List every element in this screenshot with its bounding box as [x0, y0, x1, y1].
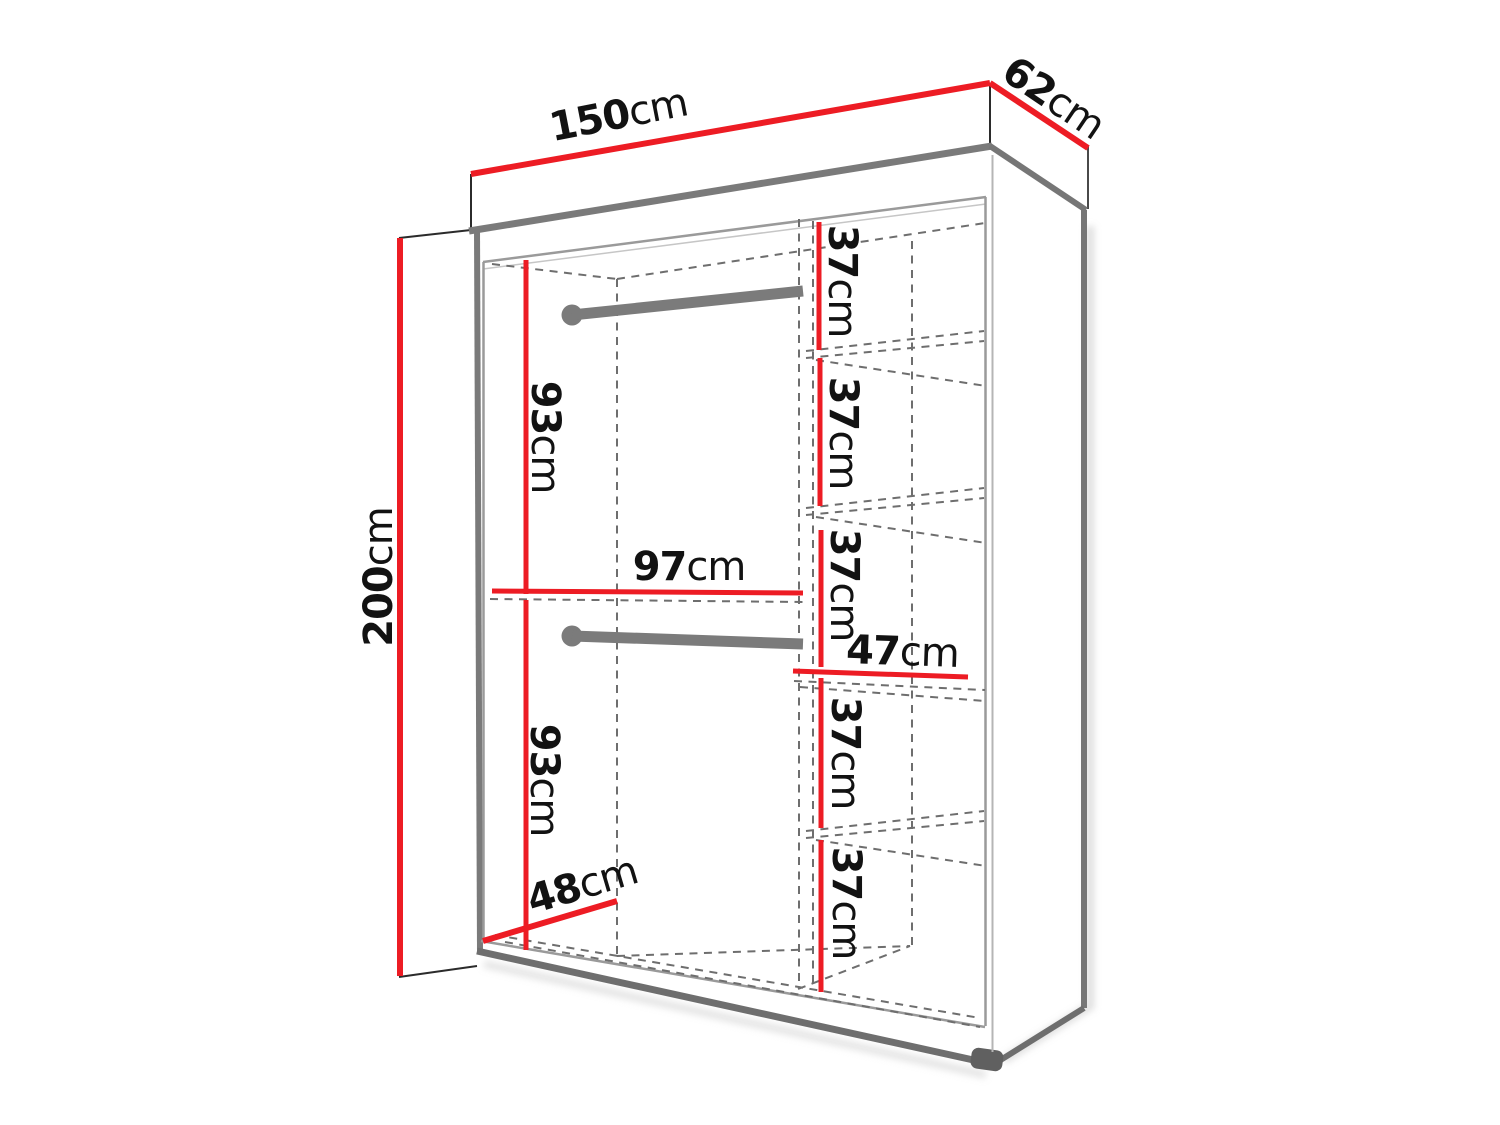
height-extension-top — [399, 230, 471, 238]
drop-shadow — [484, 226, 1090, 1075]
shelf-1-mid-line — [806, 341, 984, 358]
dim-97-label: 97cm — [633, 544, 746, 590]
dim-height-label: 200cm — [356, 507, 402, 646]
shelf-2-back-line — [806, 488, 984, 508]
height-extension-bottom — [399, 966, 477, 977]
dim-97-line — [492, 591, 803, 593]
dim-37-label-1: 37cm — [819, 225, 865, 338]
right-panel-bottom-edge — [999, 1008, 1084, 1061]
opening-top-edge — [483, 197, 986, 262]
dim-93-upper-label: 93cm — [522, 381, 568, 494]
wardrobe-foot — [970, 1047, 1005, 1072]
top-panel-side-bottom-edge — [990, 146, 1086, 210]
upper-hanging-rail — [572, 291, 803, 315]
left-wall-top-edge — [492, 264, 617, 279]
dim-93-lower-label: 93cm — [521, 724, 567, 837]
dim-37-label-4: 37cm — [822, 697, 868, 810]
ceiling-back-edge — [617, 223, 985, 279]
middle-shelf-front-edge — [490, 599, 803, 602]
lower-hanging-rail — [572, 636, 803, 644]
dim-37-label-5: 37cm — [823, 847, 869, 960]
wardrobe-dimension-diagram: 150cm 62cm 200cm 93cm 97cm 93cm 48cm 47c… — [0, 0, 1500, 1125]
shelf-4-mid-line — [806, 821, 984, 838]
shelf-2-mid-line — [806, 498, 984, 515]
shelf-4-back-line — [806, 811, 984, 831]
dim-37-label-2: 37cm — [820, 377, 866, 490]
left-front-edge — [477, 229, 480, 953]
dim-37-label-3: 37cm — [821, 529, 867, 642]
